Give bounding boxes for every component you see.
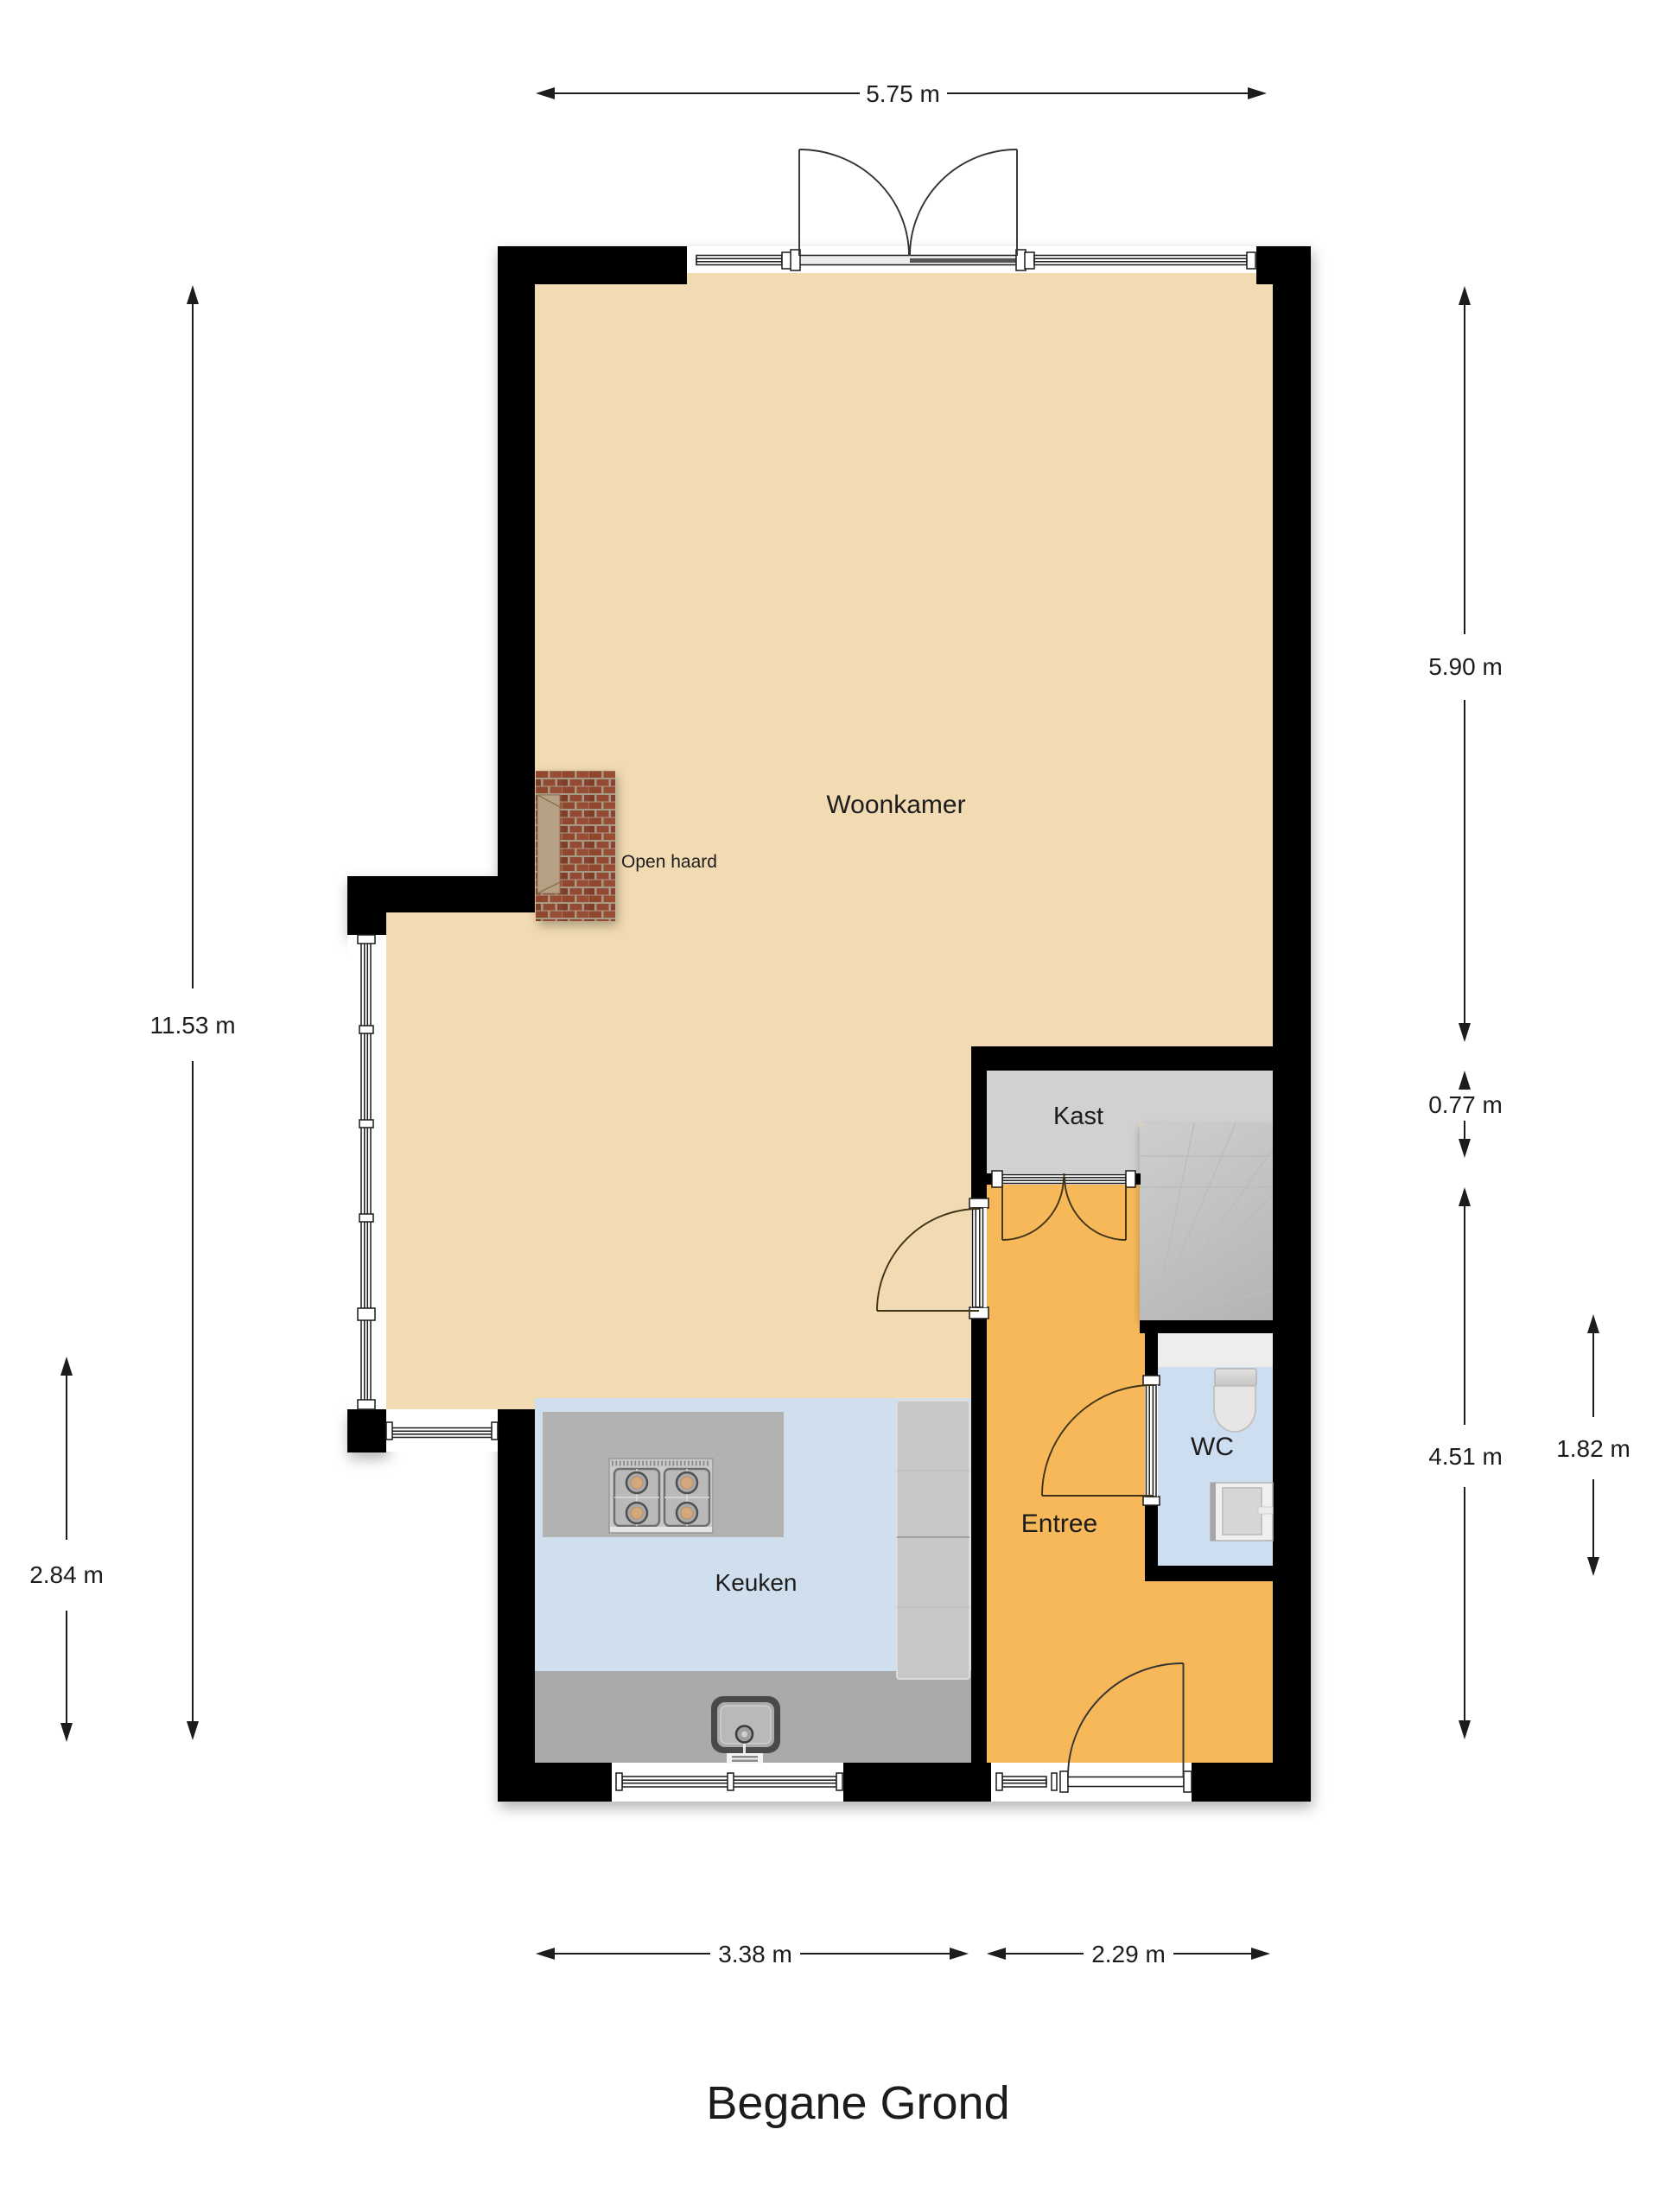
svg-text:Begane Grond: Begane Grond	[706, 2077, 1009, 2129]
svg-text:Entree: Entree	[1021, 1510, 1097, 1538]
svg-text:Keuken: Keuken	[715, 1569, 798, 1596]
svg-text:3.38 m: 3.38 m	[718, 1941, 792, 1967]
svg-text:4.51 m: 4.51 m	[1428, 1443, 1503, 1470]
svg-text:0.77 m: 0.77 m	[1428, 1091, 1503, 1118]
svg-text:WC: WC	[1191, 1433, 1234, 1461]
svg-text:Open haard: Open haard	[621, 852, 717, 872]
svg-text:Kast: Kast	[1053, 1103, 1103, 1130]
svg-text:2.29 m: 2.29 m	[1091, 1941, 1166, 1967]
svg-text:Woonkamer: Woonkamer	[826, 791, 965, 819]
svg-text:2.84 m: 2.84 m	[29, 1561, 104, 1588]
svg-text:1.82 m: 1.82 m	[1556, 1435, 1630, 1462]
svg-text:11.53 m: 11.53 m	[149, 1012, 235, 1039]
svg-text:5.75 m: 5.75 m	[866, 80, 940, 107]
svg-text:5.90 m: 5.90 m	[1428, 653, 1503, 680]
